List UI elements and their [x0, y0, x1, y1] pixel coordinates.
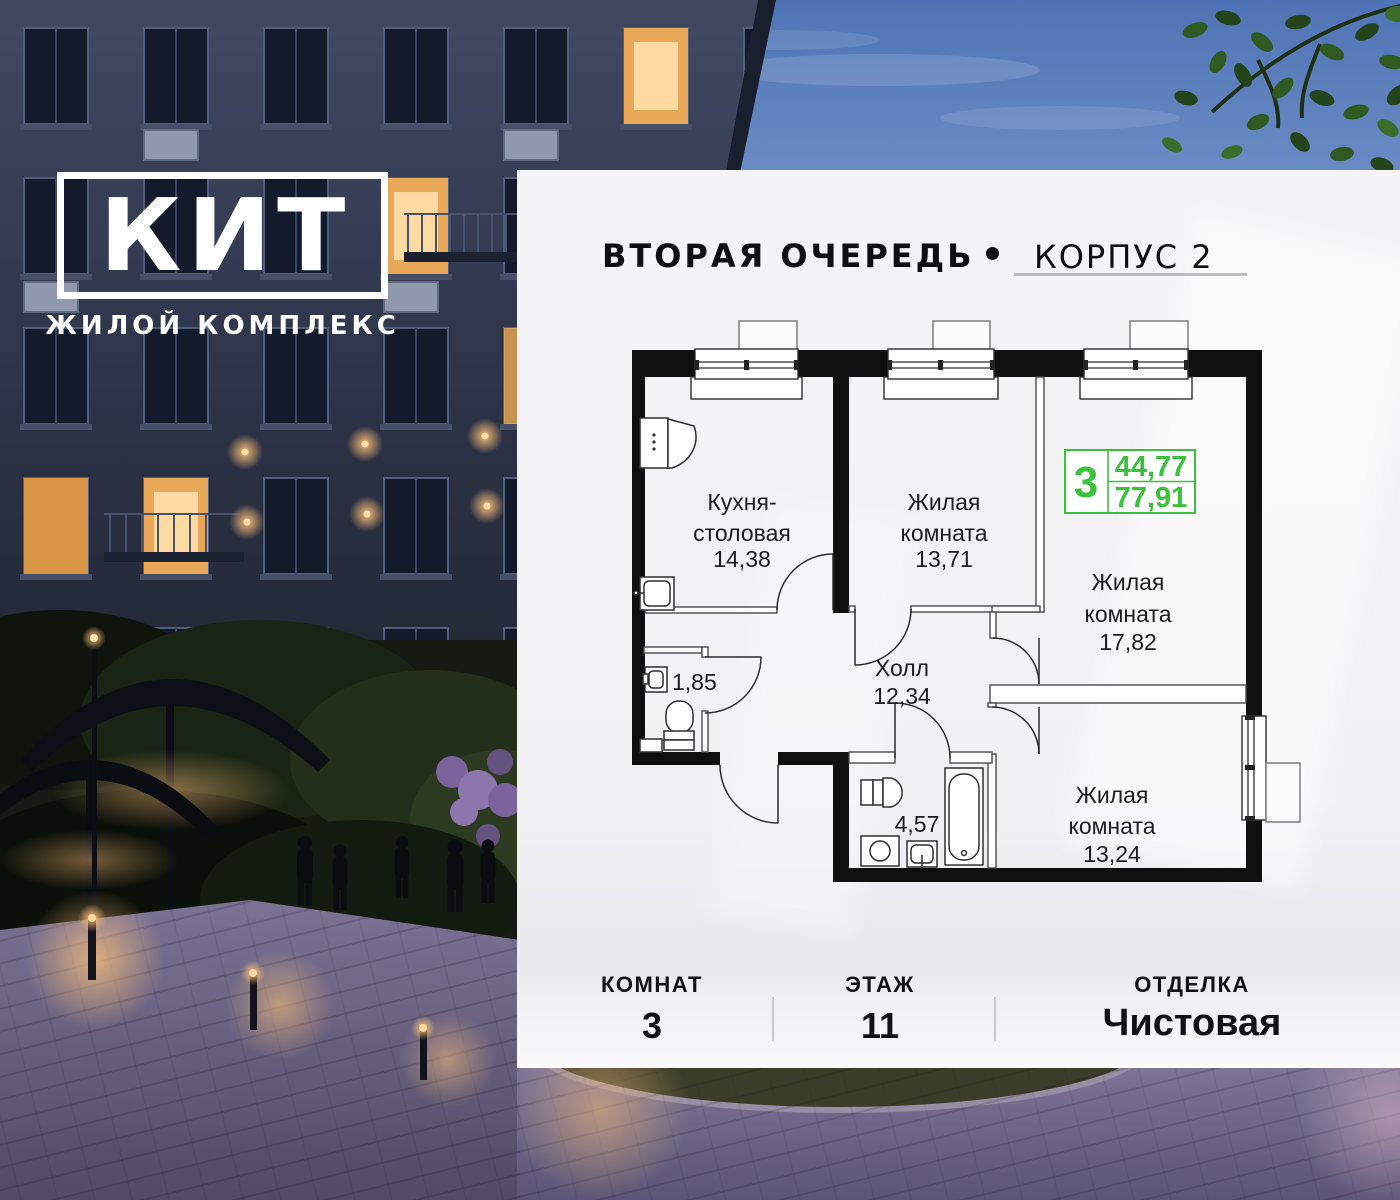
svg-text:комната: комната [1085, 601, 1172, 627]
bath-toilet [861, 778, 902, 807]
svg-text:Жилая: Жилая [1076, 782, 1149, 808]
fixtures [634, 418, 983, 869]
footer-finish-label: ОТДЕЛКА [1022, 972, 1362, 998]
footer-floor: ЭТАЖ 11 [780, 972, 980, 1047]
room-label-wc: 1,85 [672, 669, 717, 695]
kitchen-unit [640, 418, 696, 468]
korpus-link[interactable]: КОРПУС 2 [1034, 238, 1214, 276]
bullet-separator-icon [986, 247, 999, 260]
svg-text:Жилая: Жилая [1092, 569, 1165, 595]
room-label-kitchen: Кухня- столовая 14,38 [693, 489, 791, 572]
logo-box: КИТ [57, 172, 388, 299]
svg-text:12,34: 12,34 [873, 683, 931, 709]
bath-washer [861, 836, 899, 866]
badge-total-area: 77,91 [1115, 482, 1188, 514]
svg-text:Жилая: Жилая [908, 489, 981, 515]
svg-text:Холл: Холл [875, 655, 929, 681]
svg-text:комната: комната [1069, 813, 1156, 839]
phase-title: ВТОРАЯ ОЧЕРЕДЬ [602, 237, 975, 275]
footer-finish: ОТДЕЛКА Чистовая [1022, 972, 1362, 1045]
svg-text:17,82: 17,82 [1099, 629, 1157, 655]
svg-text:4,57: 4,57 [895, 811, 940, 837]
room-label-living1: Жилая комната 13,71 [901, 489, 988, 572]
footer-rooms: КОМНАТ 3 [552, 972, 752, 1047]
kitchen-sink [634, 577, 674, 610]
svg-text:13,24: 13,24 [1083, 841, 1141, 867]
svg-text:14,38: 14,38 [713, 546, 771, 572]
korpus-underline [1014, 273, 1247, 276]
svg-text:1,85: 1,85 [672, 669, 717, 695]
logo-subtitle: ЖИЛОЙ КОМПЛЕКС [40, 311, 405, 341]
room-label-hall: Холл 12,34 [873, 655, 931, 709]
svg-text:столовая: столовая [693, 520, 791, 546]
wc-toilet [640, 701, 694, 752]
badge-rooms-count: 3 [1074, 458, 1098, 507]
footer-floor-value: 11 [780, 1005, 980, 1047]
footer-rooms-value: 3 [552, 1005, 752, 1047]
footer-finish-value: Чистовая [1022, 1002, 1362, 1045]
floor-plan: Кухня- столовая 14,38 Жилая комната 13,7… [630, 313, 1310, 885]
footer-floor-label: ЭТАЖ [780, 972, 980, 998]
room-label-bathroom: 4,57 [895, 811, 940, 837]
svg-text:13,71: 13,71 [915, 546, 973, 572]
room-labels: Кухня- столовая 14,38 Жилая комната 13,7… [672, 489, 1172, 867]
flyer-stage: КИТ ЖИЛОЙ КОМПЛЕКС ВТОРАЯ ОЧЕРЕДЬ КОРПУС… [0, 0, 1400, 1200]
footer-separator [994, 997, 996, 1041]
bathtub [945, 768, 983, 865]
svg-text:Кухня-: Кухня- [707, 489, 776, 515]
room-label-living3: Жилая комната 13,24 [1069, 782, 1156, 867]
footer-separator [772, 997, 774, 1041]
room-label-living2: Жилая комната 17,82 [1085, 569, 1172, 655]
logo-title: КИТ [94, 186, 352, 286]
footer-rooms-label: КОМНАТ [552, 972, 752, 998]
wc-sink [643, 667, 667, 692]
balcony-boxes [739, 321, 1188, 353]
badge-living-area: 44,77 [1115, 451, 1188, 483]
bath-sink [907, 841, 937, 869]
area-badge: 3 44,77 77,91 [1065, 450, 1195, 514]
svg-text:комната: комната [901, 520, 988, 546]
